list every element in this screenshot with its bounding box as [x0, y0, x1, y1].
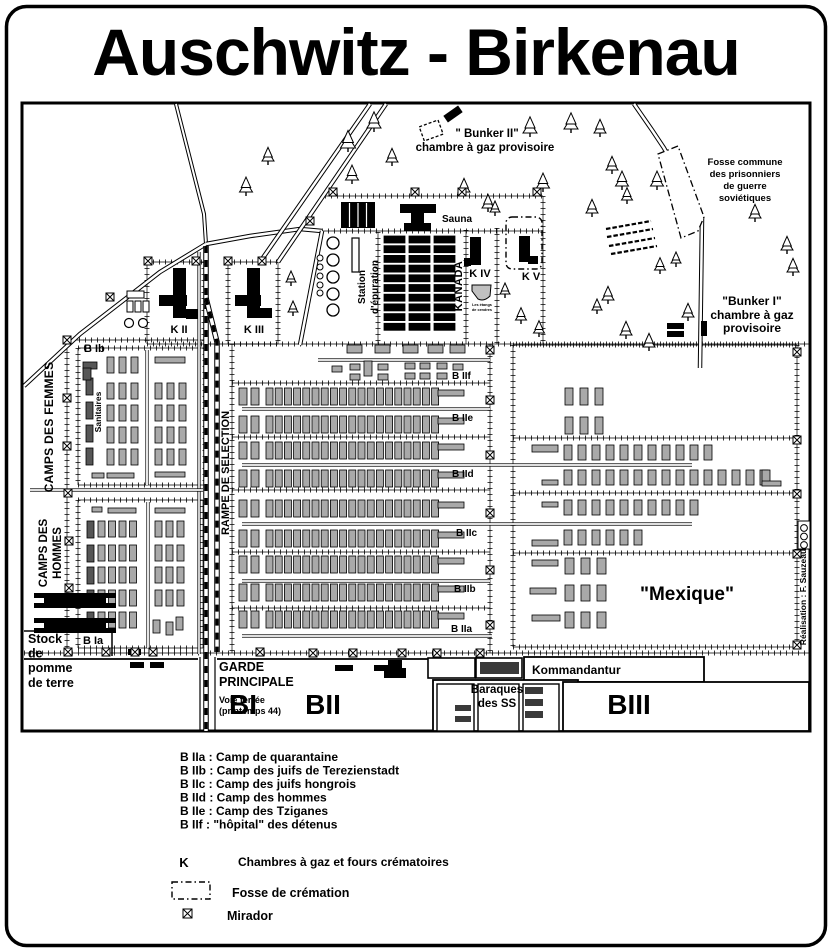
- barrack: [340, 611, 347, 628]
- barrack: [239, 470, 247, 487]
- barrack: [434, 236, 455, 243]
- barrack: [384, 294, 405, 301]
- mirador-icon: [458, 188, 466, 196]
- barrack: [422, 416, 429, 433]
- legend-k-symbol: K: [179, 855, 189, 870]
- barrack: [312, 388, 319, 405]
- barrack: [312, 556, 319, 573]
- barrack: [409, 236, 430, 243]
- barrack: [384, 265, 405, 272]
- barrack: [275, 442, 282, 459]
- barrack: [578, 500, 586, 515]
- barrack: [330, 388, 337, 405]
- k3-label: K III: [244, 324, 264, 336]
- barrack: [294, 611, 301, 628]
- barrack: [340, 388, 347, 405]
- fosse-commune-label-2: des prisonniers: [710, 169, 781, 180]
- barrack: [294, 556, 301, 573]
- barrack: [620, 500, 628, 515]
- barrack: [275, 611, 282, 628]
- mirador-icon: [433, 649, 441, 657]
- barrack: [384, 236, 405, 243]
- disinfection-building: [341, 202, 375, 228]
- barrack: [251, 500, 259, 517]
- barrack: [284, 470, 291, 487]
- legend-item-b2d: B IId : Camp des hommes: [180, 791, 327, 805]
- barrack: [330, 584, 337, 601]
- bunker1-label-3: provisoire: [723, 321, 781, 335]
- stock-label: Stock: [28, 632, 62, 646]
- barrack: [303, 611, 310, 628]
- barrack: [266, 584, 273, 601]
- barrack: [404, 500, 411, 517]
- barrack: [386, 530, 393, 547]
- barrack: [284, 442, 291, 459]
- barrack: [438, 444, 464, 450]
- mirador-icon: [224, 257, 232, 265]
- barrack: [349, 584, 356, 601]
- barrack: [303, 556, 310, 573]
- barrack: [376, 416, 383, 433]
- barrack: [386, 470, 393, 487]
- barrack: [434, 265, 455, 272]
- b2a-label: B IIa: [451, 624, 473, 635]
- barrack: [321, 442, 328, 459]
- sanitaires-label: Sanitaires: [93, 391, 103, 432]
- barrack: [239, 442, 247, 459]
- barrack: [634, 530, 642, 545]
- barrack: [107, 357, 114, 373]
- baraques-ss-label: Baraques: [471, 684, 523, 696]
- legend-cremation-pit-icon: [172, 882, 210, 899]
- barrack: [404, 584, 411, 601]
- b2f-label: B IIf: [452, 371, 472, 382]
- barrack: [434, 323, 455, 330]
- barrack: [395, 388, 402, 405]
- barrack: [578, 530, 586, 545]
- barrack: [239, 556, 247, 573]
- barrack: [395, 584, 402, 601]
- barrack: [251, 470, 259, 487]
- barrack: [107, 449, 114, 465]
- barrack: [155, 449, 162, 465]
- mirador-icon: [256, 648, 264, 656]
- barrack: [179, 427, 186, 443]
- barrack: [565, 417, 573, 434]
- mirador-icon: [258, 257, 266, 265]
- barrack: [428, 345, 443, 353]
- barrack: [330, 470, 337, 487]
- barrack: [432, 442, 439, 459]
- barrack: [432, 556, 439, 573]
- barrack: [404, 530, 411, 547]
- barrack: [349, 470, 356, 487]
- stock-label-2: de: [28, 647, 43, 661]
- barrack: [303, 584, 310, 601]
- barrack: [634, 470, 642, 485]
- barrack: [648, 470, 656, 485]
- rampe-label: RAMPE DE SELECTION: [220, 411, 232, 535]
- barrack: [340, 584, 347, 601]
- barrack: [395, 470, 402, 487]
- barrack: [294, 500, 301, 517]
- barrack: [239, 416, 247, 433]
- barrack: [294, 388, 301, 405]
- barrack: [107, 383, 114, 399]
- barrack: [131, 405, 138, 421]
- barrack: [438, 502, 464, 508]
- barrack: [367, 584, 374, 601]
- mirador-icon: [63, 442, 71, 450]
- mirador-icon: [793, 348, 801, 356]
- barrack: [284, 584, 291, 601]
- barrack: [581, 612, 590, 628]
- mirador-icon: [486, 451, 494, 459]
- barrack: [542, 502, 558, 507]
- barrack: [86, 402, 93, 419]
- barrack: [386, 500, 393, 517]
- k5-label: K V: [522, 271, 541, 283]
- barrack: [155, 521, 162, 537]
- barrack: [386, 611, 393, 628]
- barrack: [432, 530, 439, 547]
- barrack: [358, 556, 365, 573]
- barrack: [275, 500, 282, 517]
- barrack: [409, 323, 430, 330]
- b2c-label: B IIc: [456, 528, 478, 539]
- barrack: [86, 448, 93, 465]
- barrack: [358, 584, 365, 601]
- barrack: [565, 612, 574, 628]
- barrack: [532, 615, 560, 621]
- mirador-icon: [398, 649, 406, 657]
- barrack: [155, 472, 185, 477]
- barrack: [119, 545, 126, 561]
- barrack: [376, 556, 383, 573]
- barrack: [395, 611, 402, 628]
- barrack: [294, 530, 301, 547]
- mirador-icon: [63, 394, 71, 402]
- barrack: [358, 388, 365, 405]
- barrack: [592, 500, 600, 515]
- barrack: [349, 500, 356, 517]
- barrack: [349, 442, 356, 459]
- barrack: [275, 530, 282, 547]
- barrack: [413, 556, 420, 573]
- mirador-icon: [183, 909, 192, 918]
- barrack: [578, 470, 586, 485]
- barrack: [409, 275, 430, 282]
- barrack: [119, 521, 126, 537]
- barrack: [177, 521, 184, 537]
- barrack: [367, 611, 374, 628]
- barrack: [312, 416, 319, 433]
- barrack: [166, 567, 173, 583]
- barrack: [438, 613, 464, 619]
- barrack: [422, 556, 429, 573]
- barrack: [284, 416, 291, 433]
- legend-item-b2f: B IIf : "hôpital" des détenus: [180, 818, 338, 832]
- legend-item-b2c: B IIc : Camp des juifs hongrois: [180, 777, 356, 791]
- b2e-label: B IIe: [452, 413, 474, 424]
- bii-label: BII: [305, 689, 341, 720]
- barrack: [340, 556, 347, 573]
- barrack: [565, 388, 573, 405]
- barrack: [92, 507, 102, 512]
- mirador-icon: [64, 489, 72, 497]
- barrack: [662, 445, 670, 460]
- biii-label: BIII: [607, 689, 651, 720]
- barrack: [155, 567, 162, 583]
- mirador-icon: [793, 436, 801, 444]
- legend-item-b2b: B IIb : Camp des juifs de Terezienstadt: [180, 764, 399, 778]
- barrack: [177, 567, 184, 583]
- barrack: [312, 470, 319, 487]
- barrack: [376, 584, 383, 601]
- barrack: [432, 584, 439, 601]
- barrack: [746, 470, 754, 485]
- barrack: [565, 558, 574, 574]
- barrack: [409, 314, 430, 321]
- barrack: [404, 611, 411, 628]
- barrack: [532, 560, 558, 566]
- barrack: [321, 611, 328, 628]
- barrack: [378, 364, 388, 370]
- barrack: [413, 611, 420, 628]
- barrack: [321, 530, 328, 547]
- garde-label-2: PRINCIPALE: [219, 675, 294, 689]
- barrack: [580, 417, 588, 434]
- barrack: [303, 530, 310, 547]
- mirador-icon: [65, 537, 73, 545]
- barrack: [119, 590, 126, 606]
- barrack: [409, 265, 430, 272]
- barrack: [434, 246, 455, 253]
- barrack: [405, 363, 415, 369]
- barrack: [87, 545, 94, 562]
- ash-pond-label: Les étangs: [472, 303, 492, 307]
- barrack: [87, 567, 94, 584]
- mirador-icon: [106, 293, 114, 301]
- barrack: [384, 304, 405, 311]
- barrack: [119, 567, 126, 583]
- barrack: [167, 383, 174, 399]
- barrack: [432, 611, 439, 628]
- barrack: [437, 373, 447, 379]
- barrack: [266, 388, 273, 405]
- barrack: [251, 530, 259, 547]
- barrack: [413, 470, 420, 487]
- barrack: [358, 442, 365, 459]
- cc-license-badge: [798, 521, 810, 549]
- mirador-icon: [486, 346, 494, 354]
- barrack: [434, 255, 455, 262]
- barrack: [155, 590, 162, 606]
- mirador-icon: [486, 396, 494, 404]
- barrack: [332, 366, 342, 372]
- barrack: [130, 567, 137, 583]
- kanada-label: KANADA: [453, 261, 465, 312]
- barrack: [413, 442, 420, 459]
- stock-label-3: pomme: [28, 661, 73, 675]
- barrack: [98, 521, 105, 537]
- barrack: [434, 304, 455, 311]
- barrack: [564, 500, 572, 515]
- barrack: [239, 584, 247, 601]
- b1a-label: B Ia: [83, 635, 104, 647]
- barrack: [303, 388, 310, 405]
- barrack: [676, 470, 684, 485]
- barrack: [367, 530, 374, 547]
- barrack: [404, 556, 411, 573]
- barrack: [403, 345, 418, 353]
- barrack: [266, 442, 273, 459]
- barrack: [340, 470, 347, 487]
- barrack: [266, 556, 273, 573]
- bunker2-label-2: chambre à gaz provisoire: [416, 142, 555, 154]
- page-title: Auschwitz - Birkenau: [92, 15, 739, 89]
- barrack: [179, 449, 186, 465]
- station-label-2: d'épuration: [370, 260, 381, 314]
- barrack: [108, 508, 136, 513]
- barrack: [358, 500, 365, 517]
- barrack: [312, 584, 319, 601]
- barrack: [321, 556, 328, 573]
- barrack: [376, 442, 383, 459]
- barrack: [422, 530, 429, 547]
- barrack: [303, 416, 310, 433]
- barrack: [284, 500, 291, 517]
- barrack: [155, 508, 185, 513]
- barrack: [581, 585, 590, 601]
- barrack: [432, 388, 439, 405]
- mirador-icon: [329, 188, 337, 196]
- barrack: [378, 374, 388, 380]
- barrack: [303, 500, 310, 517]
- barrack: [166, 622, 173, 635]
- barrack: [564, 530, 572, 545]
- barrack: [450, 345, 465, 353]
- legend-mirador-label: Mirador: [227, 909, 273, 923]
- barrack: [364, 361, 372, 376]
- barrack: [404, 442, 411, 459]
- barrack: [119, 612, 126, 628]
- barrack: [284, 530, 291, 547]
- barrack: [395, 500, 402, 517]
- mirador-icon: [102, 648, 110, 656]
- barrack: [266, 500, 273, 517]
- barrack: [413, 388, 420, 405]
- barrack: [340, 442, 347, 459]
- barrack: [704, 445, 712, 460]
- sauna-label: Sauna: [442, 214, 472, 225]
- b2b-label: B IIb: [454, 584, 476, 595]
- barrack: [530, 588, 556, 594]
- barrack: [395, 416, 402, 433]
- bunker1-label: "Bunker I": [722, 294, 781, 308]
- mexique-label: "Mexique": [640, 584, 734, 605]
- barrack: [119, 383, 126, 399]
- mirador-icon: [349, 649, 357, 657]
- barrack: [386, 556, 393, 573]
- camps-hommes-label: CAMPS DES: [38, 518, 50, 587]
- credit-label: Réalisation : F. Sauzeau: [798, 549, 808, 645]
- barrack: [384, 255, 405, 262]
- barrack: [620, 470, 628, 485]
- barrack: [662, 500, 670, 515]
- barrack: [251, 388, 259, 405]
- barrack: [155, 427, 162, 443]
- mirador-icon: [144, 257, 152, 265]
- barrack: [578, 445, 586, 460]
- b2d-label: B IId: [452, 469, 474, 480]
- barrack: [358, 611, 365, 628]
- barrack: [384, 285, 405, 292]
- barrack: [409, 246, 430, 253]
- barrack: [119, 405, 126, 421]
- barrack: [438, 558, 464, 564]
- bunker1-label-2: chambre à gaz: [710, 308, 793, 322]
- k2-label: K II: [170, 324, 187, 336]
- map-page: Auschwitz - Birkenau " Bunker II" chambr…: [0, 0, 832, 952]
- barrack: [176, 617, 183, 630]
- barrack: [340, 530, 347, 547]
- b1b-label: B Ib: [84, 343, 105, 355]
- barrack: [358, 416, 365, 433]
- barrack: [532, 445, 558, 452]
- barrack: [620, 530, 628, 545]
- barrack: [107, 473, 134, 478]
- barrack: [266, 470, 273, 487]
- barrack: [565, 585, 574, 601]
- barrack: [131, 427, 138, 443]
- barrack: [330, 500, 337, 517]
- barrack: [434, 314, 455, 321]
- barrack: [312, 611, 319, 628]
- barrack: [166, 590, 173, 606]
- barrack: [358, 530, 365, 547]
- barrack: [347, 345, 362, 353]
- mirador-icon: [533, 188, 541, 196]
- barrack: [109, 521, 116, 537]
- barrack: [422, 442, 429, 459]
- mirador-icon: [486, 566, 494, 574]
- barrack: [155, 545, 162, 561]
- barrack: [434, 285, 455, 292]
- barrack: [266, 416, 273, 433]
- barrack: [404, 388, 411, 405]
- fosse-commune-label-3: de guerre: [723, 181, 766, 192]
- barrack: [409, 255, 430, 262]
- barrack: [312, 500, 319, 517]
- barrack: [376, 388, 383, 405]
- barrack: [321, 416, 328, 433]
- barrack: [404, 470, 411, 487]
- barrack: [384, 246, 405, 253]
- barrack: [321, 584, 328, 601]
- barrack: [87, 521, 94, 538]
- barrack: [275, 584, 282, 601]
- barrack: [119, 449, 126, 465]
- barrack: [606, 470, 614, 485]
- barrack: [732, 470, 740, 485]
- barrack: [432, 470, 439, 487]
- barrack: [597, 558, 606, 574]
- legend-item-b2a: B IIa : Camp de quarantaine: [180, 750, 338, 764]
- barrack: [384, 323, 405, 330]
- barrack: [438, 390, 464, 396]
- barrack: [620, 445, 628, 460]
